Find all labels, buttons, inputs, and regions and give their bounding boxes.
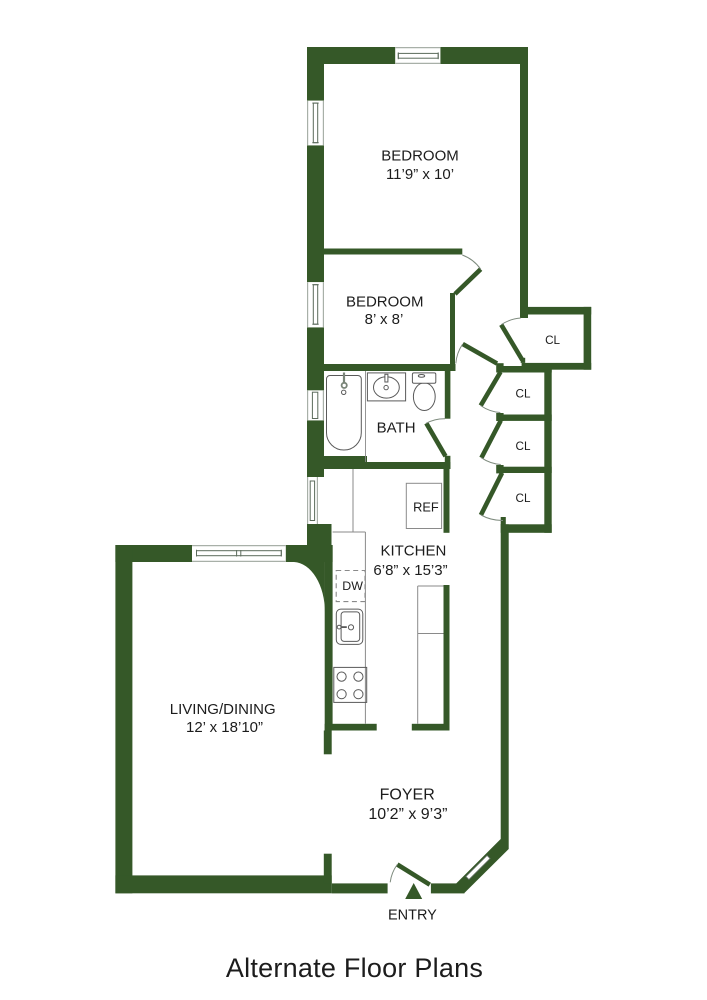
svg-text:12’ x 18’10”: 12’ x 18’10”: [186, 719, 263, 736]
svg-text:8’ x 8’: 8’ x 8’: [365, 311, 404, 328]
svg-text:10’2” x 9’3”: 10’2” x 9’3”: [368, 806, 447, 823]
svg-text:FOYER: FOYER: [380, 787, 435, 804]
svg-text:ENTRY: ENTRY: [388, 907, 437, 923]
svg-text:CL: CL: [516, 492, 531, 505]
svg-text:KITCHEN: KITCHEN: [380, 542, 446, 559]
svg-text:DW: DW: [342, 579, 363, 593]
svg-text:BEDROOM: BEDROOM: [346, 294, 424, 311]
svg-text:CL: CL: [516, 440, 531, 453]
svg-text:CL: CL: [516, 388, 531, 401]
svg-text:LIVING/DINING: LIVING/DINING: [170, 701, 276, 718]
svg-text:REF: REF: [413, 500, 439, 515]
svg-text:Alternate Floor Plans: Alternate Floor Plans: [226, 953, 483, 983]
svg-text:CL: CL: [545, 334, 560, 347]
svg-text:BEDROOM: BEDROOM: [381, 148, 459, 165]
svg-text:11’9” x 10’: 11’9” x 10’: [386, 166, 454, 183]
svg-text:6’8” x 15’3”: 6’8” x 15’3”: [373, 562, 447, 579]
svg-text:BATH: BATH: [377, 419, 416, 436]
